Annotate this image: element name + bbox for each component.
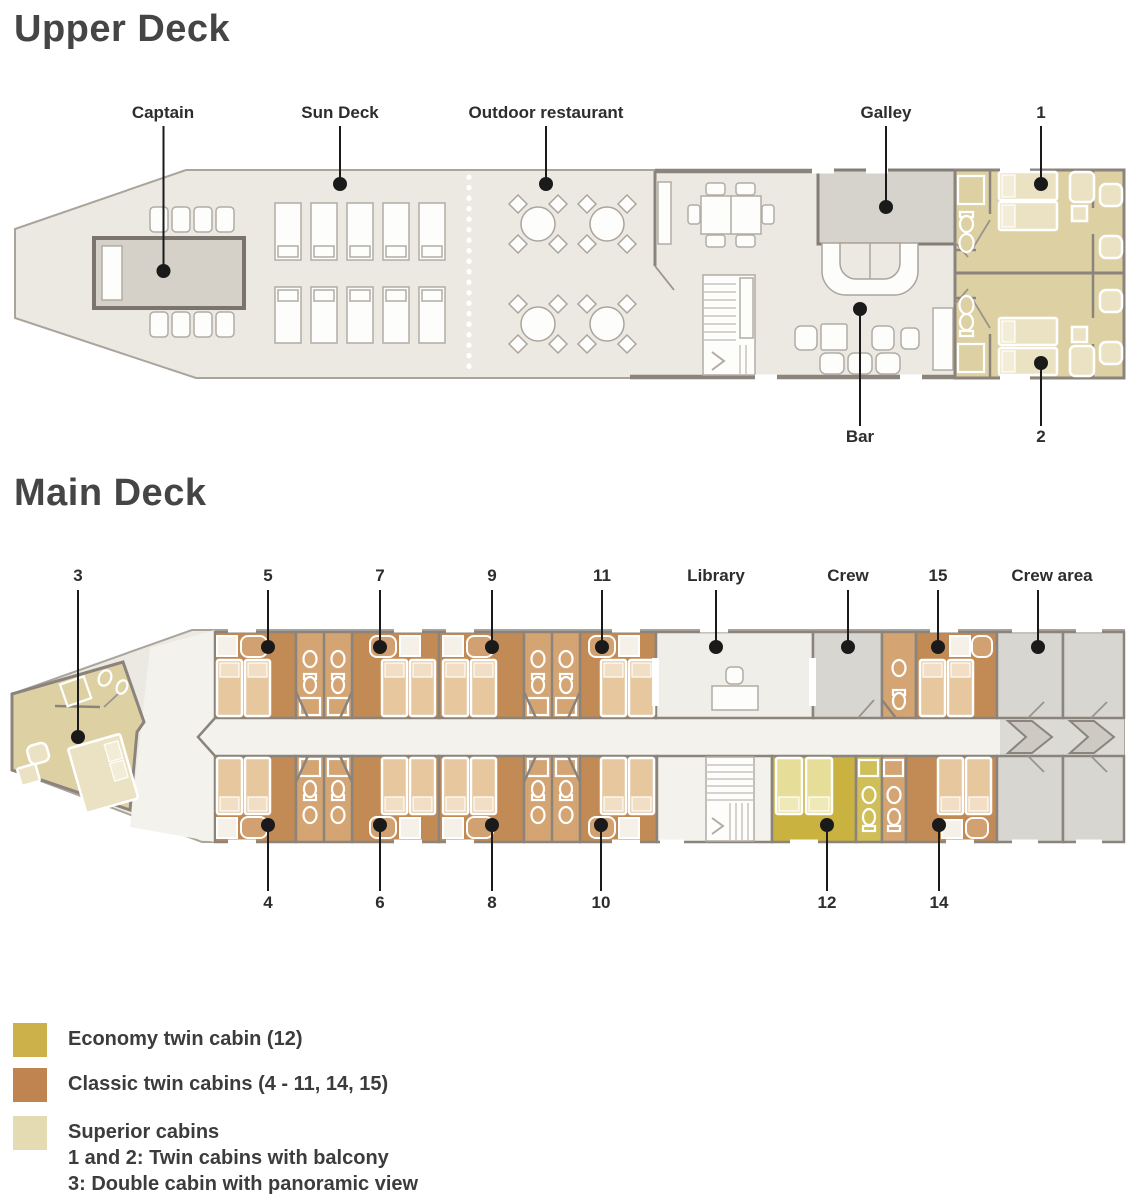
deck-plan-canvas xyxy=(0,0,1133,1200)
label-bar: Bar xyxy=(846,427,874,447)
legend-label-superior: Superior cabins xyxy=(68,1119,418,1145)
crew-area-room xyxy=(997,632,1063,718)
legend-swatch-superior xyxy=(13,1116,47,1150)
label-crew-area: Crew area xyxy=(1011,566,1092,586)
stairs-upper xyxy=(703,275,755,375)
corridor xyxy=(197,718,1000,756)
legend-label-classic: Classic twin cabins (4 - 11, 14, 15) xyxy=(68,1071,388,1097)
label-cabin-12: 12 xyxy=(818,893,837,913)
deck-plan-page: Upper Deck Main Deck Captain Sun Deck Ou… xyxy=(0,0,1133,1200)
label-outdoor-restaurant: Outdoor restaurant xyxy=(469,103,624,123)
closet xyxy=(933,308,953,370)
legend-label-superior-note-1: 1 and 2: Twin cabins with balcony xyxy=(68,1145,418,1171)
main-deck-title: Main Deck xyxy=(14,472,206,515)
label-cabin-5: 5 xyxy=(263,566,272,586)
legend-row-economy: Economy twin cabin (12) xyxy=(13,1023,302,1057)
label-captain: Captain xyxy=(132,103,194,123)
label-cabin-1: 1 xyxy=(1036,103,1045,123)
legend-swatch-classic xyxy=(13,1068,47,1102)
crew-area-room xyxy=(997,756,1063,842)
label-cabin-10: 10 xyxy=(592,893,611,913)
legend-label-superior-note-2: 3: Double cabin with panoramic view xyxy=(68,1171,418,1197)
label-sun-deck: Sun Deck xyxy=(301,103,378,123)
upper-deck-floorplan xyxy=(15,170,1124,378)
label-cabin-9: 9 xyxy=(487,566,496,586)
stairs-main xyxy=(706,757,754,841)
label-cabin-6: 6 xyxy=(375,893,384,913)
legend-label-economy: Economy twin cabin (12) xyxy=(68,1026,302,1052)
label-cabin-2: 2 xyxy=(1036,427,1045,447)
label-cabin-14: 14 xyxy=(930,893,949,913)
legend-row-classic: Classic twin cabins (4 - 11, 14, 15) xyxy=(13,1068,388,1102)
crew-area-room xyxy=(1063,632,1124,718)
label-cabin-8: 8 xyxy=(487,893,496,913)
cabins-1-2 xyxy=(955,170,1124,378)
label-cabin-11: 11 xyxy=(593,566,611,586)
label-galley: Galley xyxy=(860,103,911,123)
sideboard xyxy=(658,182,671,244)
captain-console xyxy=(102,246,122,300)
label-crew: Crew xyxy=(827,566,869,586)
legend-row-superior: Superior cabins 1 and 2: Twin cabins wit… xyxy=(13,1116,418,1197)
upper-deck-title: Upper Deck xyxy=(14,8,230,51)
label-library: Library xyxy=(687,566,745,586)
label-cabin-7: 7 xyxy=(375,566,384,586)
label-cabin-3: 3 xyxy=(73,566,82,586)
main-deck-floorplan xyxy=(12,630,1124,842)
label-cabin-15: 15 xyxy=(929,566,948,586)
label-cabin-4: 4 xyxy=(263,893,272,913)
legend-swatch-economy xyxy=(13,1023,47,1057)
crew-area-room xyxy=(1063,756,1124,842)
bar-counter xyxy=(822,243,918,295)
